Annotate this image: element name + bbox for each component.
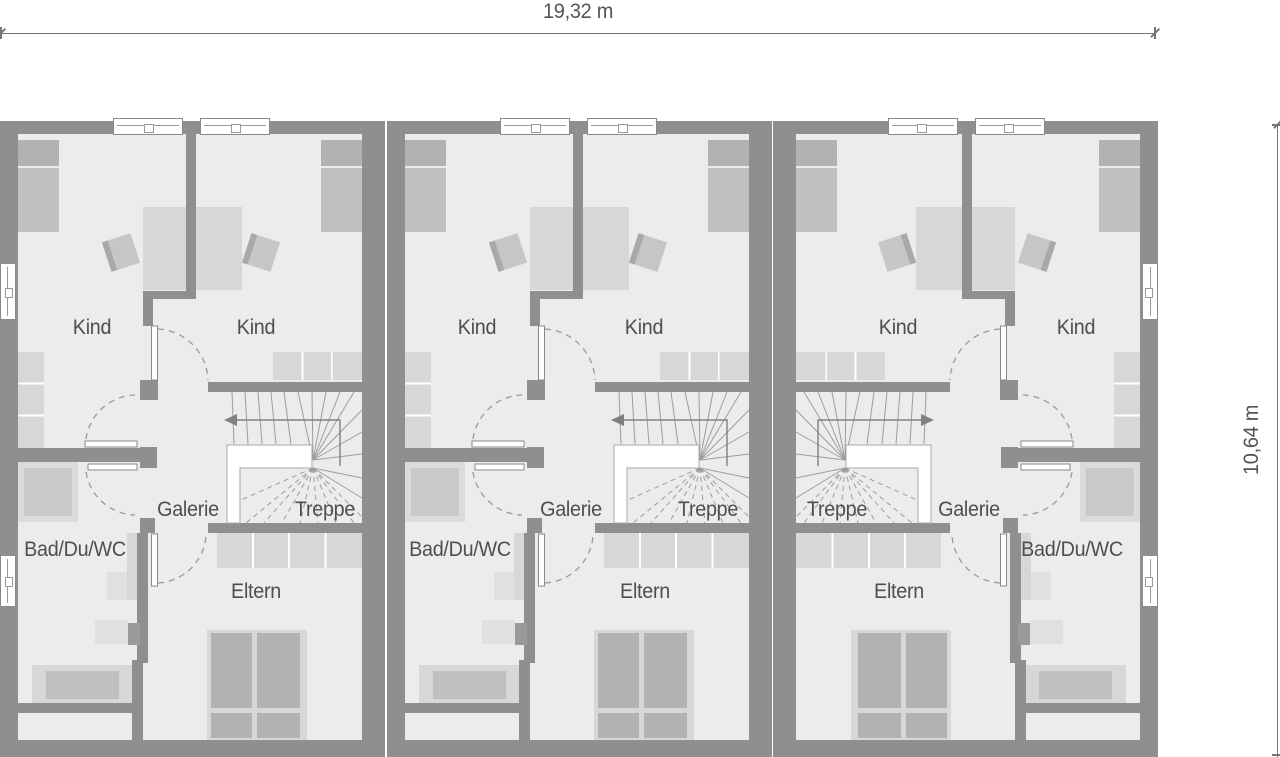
top-window-2 — [200, 118, 270, 135]
door-leaves — [1001, 326, 1074, 586]
staircase — [224, 392, 362, 523]
door-swing-arcs — [86, 329, 208, 583]
side-window-2 — [0, 555, 16, 607]
top-window-2 — [888, 118, 958, 135]
side-window-2 — [1142, 555, 1158, 607]
door-leaves — [472, 326, 545, 586]
dimension-right-label: 10,64 m — [1240, 405, 1264, 475]
house-3 — [773, 0, 1158, 757]
stairs-and-doors — [773, 0, 1158, 757]
house-1 — [0, 0, 385, 757]
dimension-right-tick-bottom — [1272, 754, 1280, 756]
staircase — [611, 392, 749, 523]
house-2 — [387, 0, 772, 757]
door-swing-arcs — [950, 329, 1072, 583]
dimension-right-line — [1277, 124, 1278, 757]
top-window-2 — [587, 118, 657, 135]
side-window-1 — [1142, 263, 1158, 320]
side-window-1 — [0, 263, 16, 320]
floorplan-page: 19,32 m 10,64 m KindKindGalerieTreppeBad… — [0, 0, 1280, 757]
top-window-1 — [500, 118, 570, 135]
top-window-1 — [113, 118, 183, 135]
door-leaves — [85, 326, 158, 586]
top-window-1 — [975, 118, 1045, 135]
stairs-and-doors — [387, 0, 772, 757]
door-swing-arcs — [473, 329, 595, 583]
stairs-and-doors — [0, 0, 385, 757]
staircase — [796, 392, 934, 523]
